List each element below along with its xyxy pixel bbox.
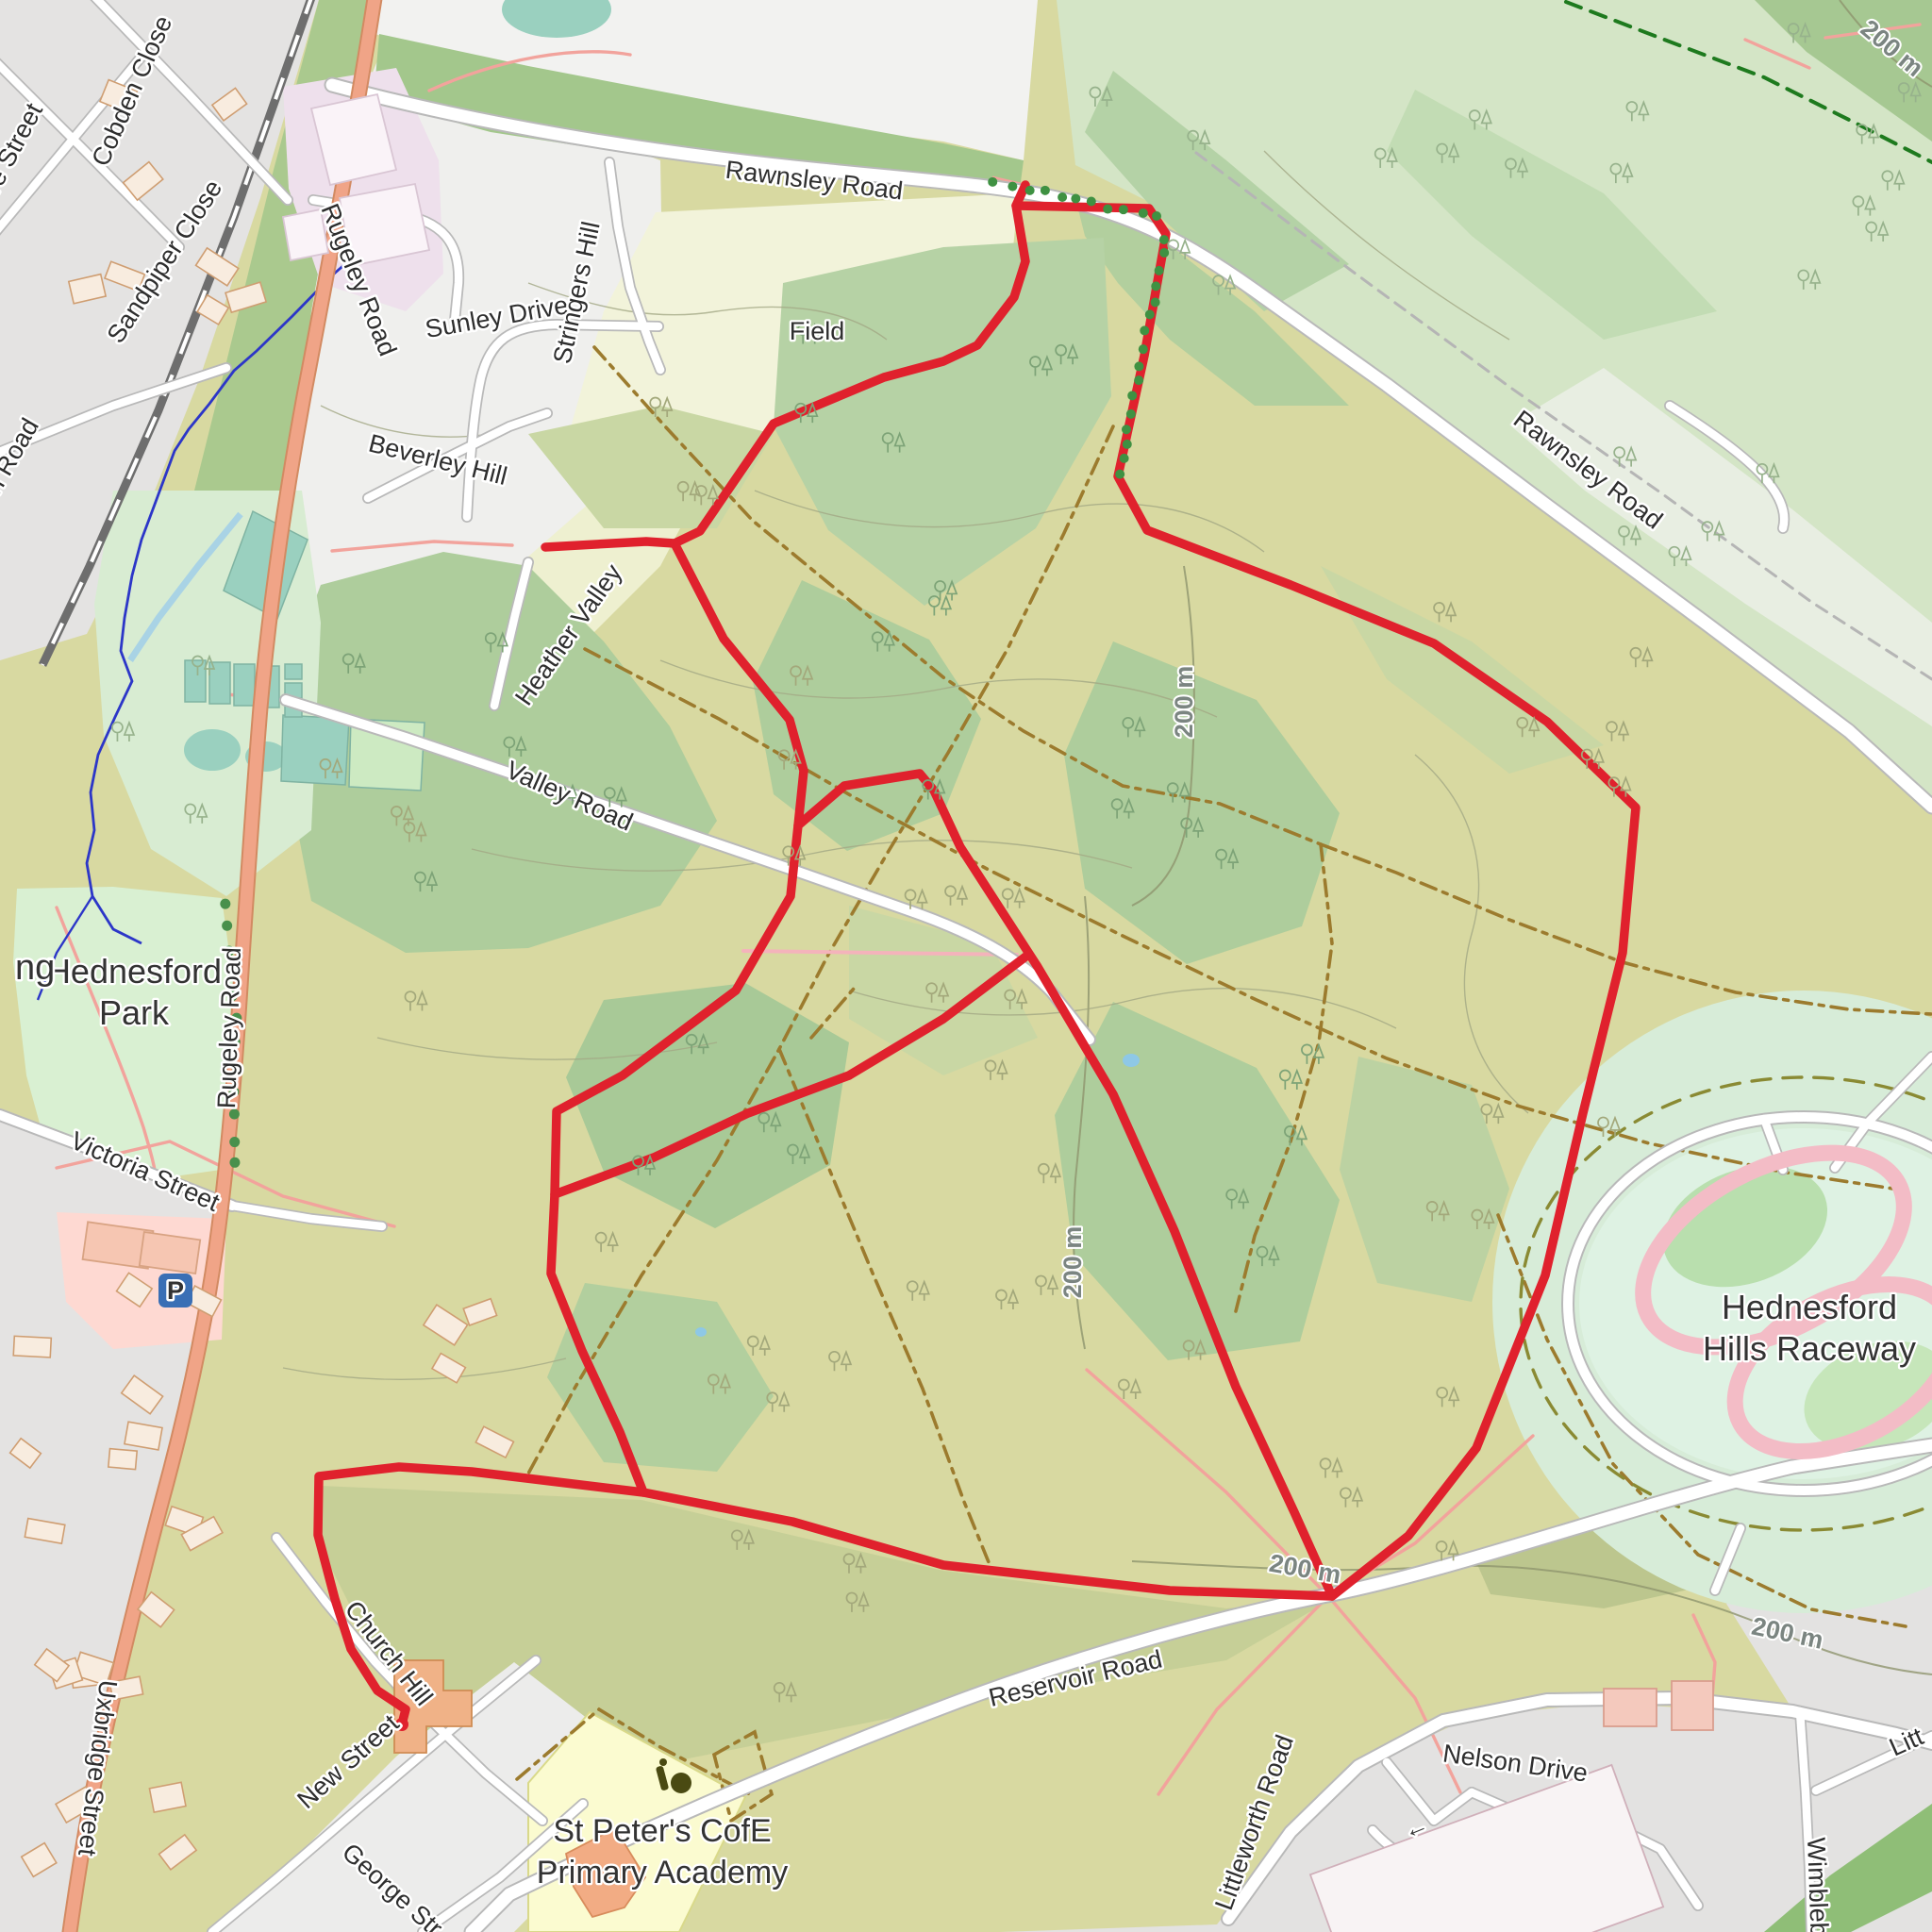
tree-icon (1140, 325, 1149, 335)
tree-icon (1127, 391, 1137, 400)
tree-icon (222, 921, 232, 931)
tree-icon (1126, 409, 1136, 419)
tree-icon (229, 1137, 240, 1147)
tree-icon (1159, 235, 1169, 244)
building (125, 1422, 162, 1450)
tree-icon (1123, 440, 1132, 449)
map-canvas[interactable]: P ← Cobden Close Sandpiper Close ore Str… (0, 0, 1932, 1932)
label-wimblebury-partial: Wimblebu (1802, 1837, 1834, 1932)
tree-icon (1122, 425, 1131, 434)
tree-icon (1119, 205, 1128, 214)
tree-icon (1155, 266, 1164, 275)
svg-text:P: P (167, 1276, 184, 1305)
building (13, 1336, 51, 1357)
tree-icon (1152, 211, 1161, 221)
tree-icon (1145, 309, 1155, 319)
parking-icon: P (158, 1274, 192, 1307)
label-contour-200m: 200 m (1170, 666, 1198, 739)
tree-icon (229, 1158, 240, 1168)
svg-text:St Peter's CofE: St Peter's CofE (553, 1813, 771, 1849)
label-field: Field (790, 317, 845, 345)
svg-text:Park: Park (99, 993, 170, 1032)
tree-icon (1025, 186, 1035, 195)
tree-icon (1151, 297, 1160, 307)
svg-text:Hednesford: Hednesford (1722, 1288, 1897, 1326)
tree-icon (1087, 197, 1096, 207)
label-ng-partial: ng (15, 948, 55, 988)
pond (695, 1327, 707, 1337)
label-contour-200m: 200 m (1058, 1226, 1087, 1299)
tree-icon (1134, 375, 1143, 385)
building (108, 1449, 137, 1470)
map-viewport[interactable]: P ← Cobden Close Sandpiper Close ore Str… (0, 0, 1932, 1932)
svg-text:Hednesford: Hednesford (46, 952, 222, 991)
tree-icon (1103, 205, 1112, 214)
tree-icon (1115, 470, 1124, 479)
tree-icon (1058, 192, 1067, 202)
tree-icon (1071, 193, 1080, 203)
tree-icon (220, 899, 230, 909)
svg-text:Primary Academy: Primary Academy (537, 1855, 788, 1890)
tree-icon (1159, 248, 1169, 258)
tree-icon (229, 1108, 240, 1119)
building (149, 1782, 186, 1812)
tree-icon (1134, 361, 1143, 371)
tree-icon (1151, 281, 1160, 291)
svg-text:Hills Raceway: Hills Raceway (1703, 1329, 1916, 1368)
tree-icon (988, 177, 997, 187)
tree-icon (1139, 208, 1148, 218)
tree-icon (1041, 186, 1050, 195)
tree-icon (1139, 344, 1148, 354)
pond (1123, 1054, 1140, 1067)
tree-icon (1120, 454, 1129, 463)
tree-icon (1008, 182, 1017, 192)
